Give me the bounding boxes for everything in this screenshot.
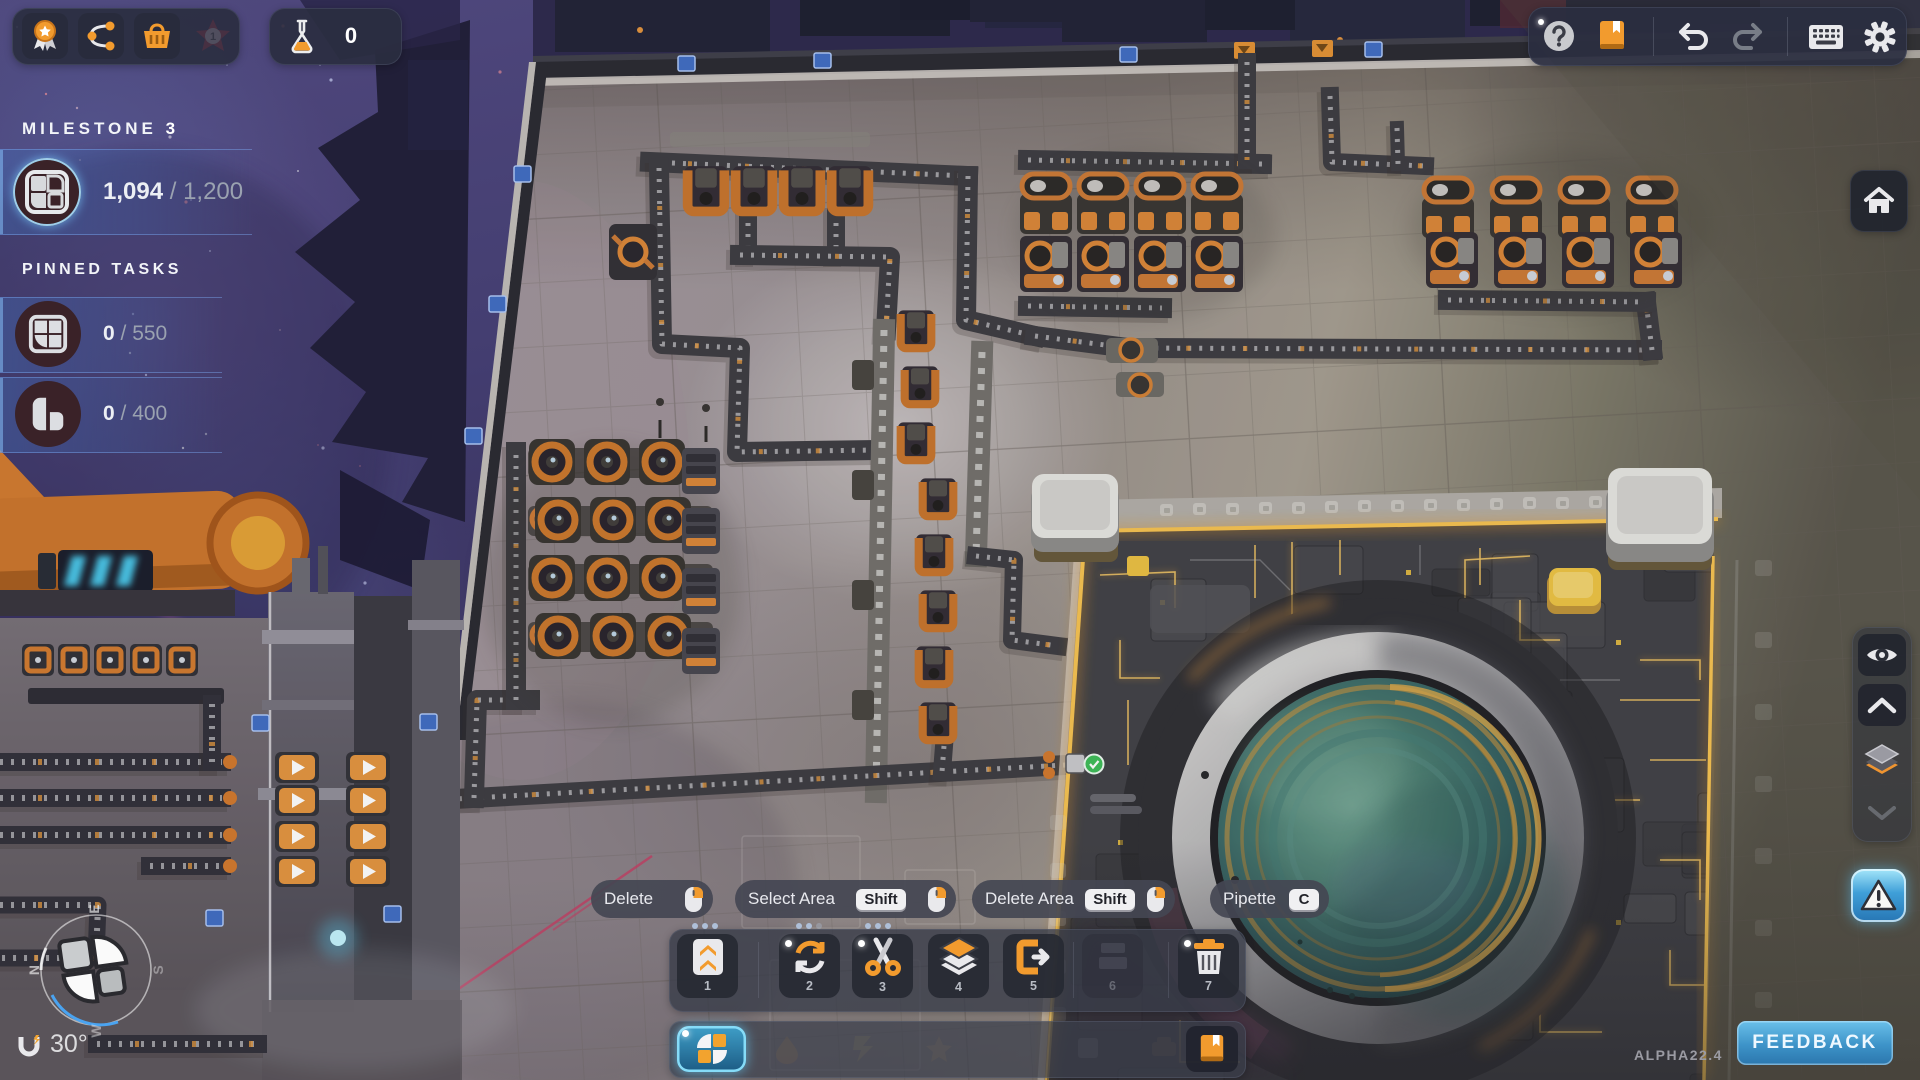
svg-text:S: S: [150, 965, 166, 974]
svg-text:N: N: [26, 965, 42, 975]
svg-text:1: 1: [210, 31, 216, 43]
svg-text:E: E: [86, 904, 102, 913]
svg-text:W: W: [88, 1024, 104, 1038]
